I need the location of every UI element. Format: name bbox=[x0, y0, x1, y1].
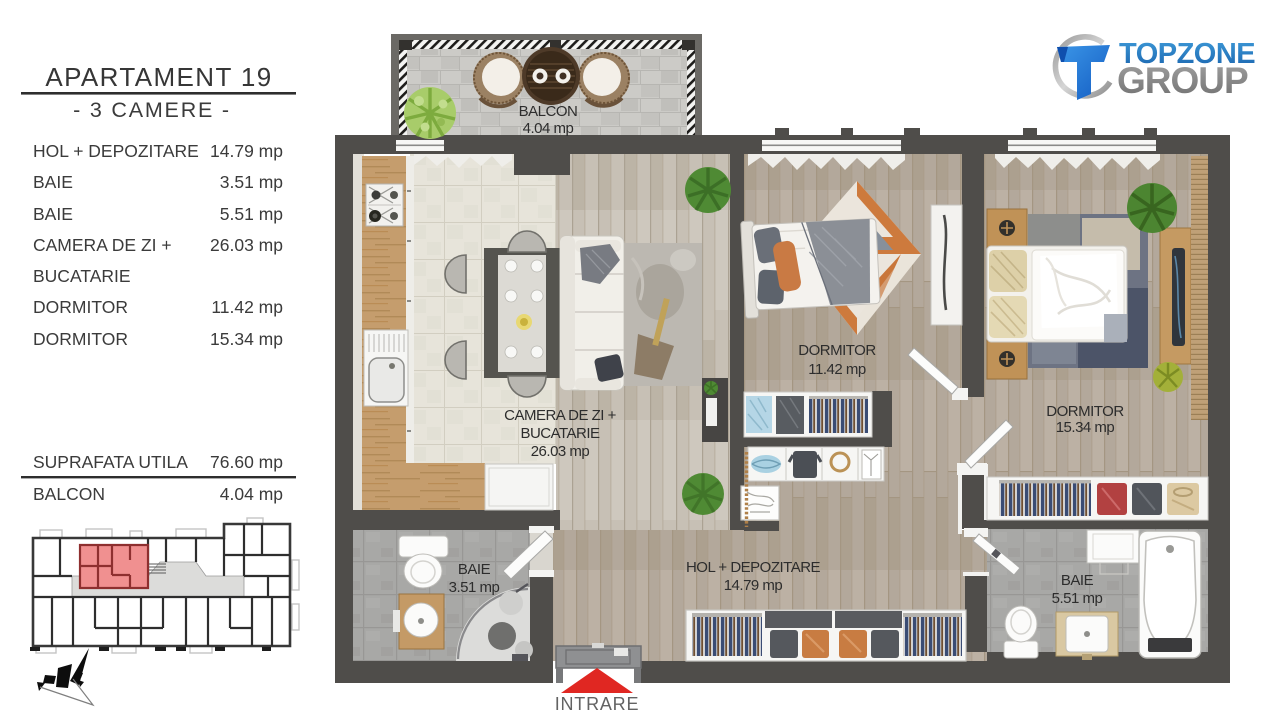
svg-text:3.51 mp: 3.51 mp bbox=[449, 579, 500, 596]
svg-text:DORMITOR: DORMITOR bbox=[33, 329, 128, 349]
svg-text:5.51 mp: 5.51 mp bbox=[220, 204, 283, 224]
svg-text:CAMERA DE ZI +: CAMERA DE ZI + bbox=[504, 407, 617, 424]
svg-text:5.51 mp: 5.51 mp bbox=[1052, 590, 1103, 607]
svg-text:DORMITOR: DORMITOR bbox=[33, 297, 128, 317]
svg-text:HOL + DEPOZITARE: HOL + DEPOZITARE bbox=[686, 559, 821, 576]
svg-text:26.03 mp: 26.03 mp bbox=[531, 443, 590, 460]
svg-text:CAMERA DE ZI +: CAMERA DE ZI + bbox=[33, 235, 172, 255]
svg-text:APARTAMENT 19: APARTAMENT 19 bbox=[45, 62, 272, 92]
svg-text:26.03 mp: 26.03 mp bbox=[210, 235, 283, 255]
svg-text:14.79 mp: 14.79 mp bbox=[210, 141, 283, 161]
svg-text:11.42 mp: 11.42 mp bbox=[808, 361, 866, 378]
svg-text:HOL + DEPOZITARE: HOL + DEPOZITARE bbox=[33, 141, 199, 161]
svg-text:3.51 mp: 3.51 mp bbox=[220, 172, 283, 192]
svg-text:15.34 mp: 15.34 mp bbox=[1056, 419, 1115, 436]
svg-text:11.42 mp: 11.42 mp bbox=[211, 297, 283, 317]
svg-text:DORMITOR: DORMITOR bbox=[798, 342, 876, 359]
svg-text:15.34 mp: 15.34 mp bbox=[210, 329, 283, 349]
svg-text:14.79 mp: 14.79 mp bbox=[724, 577, 783, 594]
svg-text:BAIE: BAIE bbox=[1061, 572, 1094, 589]
svg-text:INTRARE: INTRARE bbox=[555, 694, 640, 714]
svg-text:BALCON: BALCON bbox=[33, 484, 105, 504]
svg-text:4.04 mp: 4.04 mp bbox=[523, 120, 574, 137]
svg-text:BALCON: BALCON bbox=[519, 103, 578, 120]
svg-text:BAIE: BAIE bbox=[458, 561, 491, 578]
svg-text:SUPRAFATA UTILA: SUPRAFATA UTILA bbox=[33, 452, 188, 472]
svg-text:BAIE: BAIE bbox=[33, 172, 73, 192]
svg-text:4.04 mp: 4.04 mp bbox=[220, 484, 283, 504]
svg-text:DORMITOR: DORMITOR bbox=[1046, 403, 1124, 420]
svg-text:BUCATARIE: BUCATARIE bbox=[520, 425, 600, 442]
svg-text:BAIE: BAIE bbox=[33, 204, 73, 224]
svg-text:76.60 mp: 76.60 mp bbox=[210, 452, 283, 472]
svg-text:BUCATARIE: BUCATARIE bbox=[33, 266, 131, 286]
svg-text:GROUP: GROUP bbox=[1117, 60, 1248, 101]
svg-text:- 3 CAMERE -: - 3 CAMERE - bbox=[73, 98, 231, 122]
